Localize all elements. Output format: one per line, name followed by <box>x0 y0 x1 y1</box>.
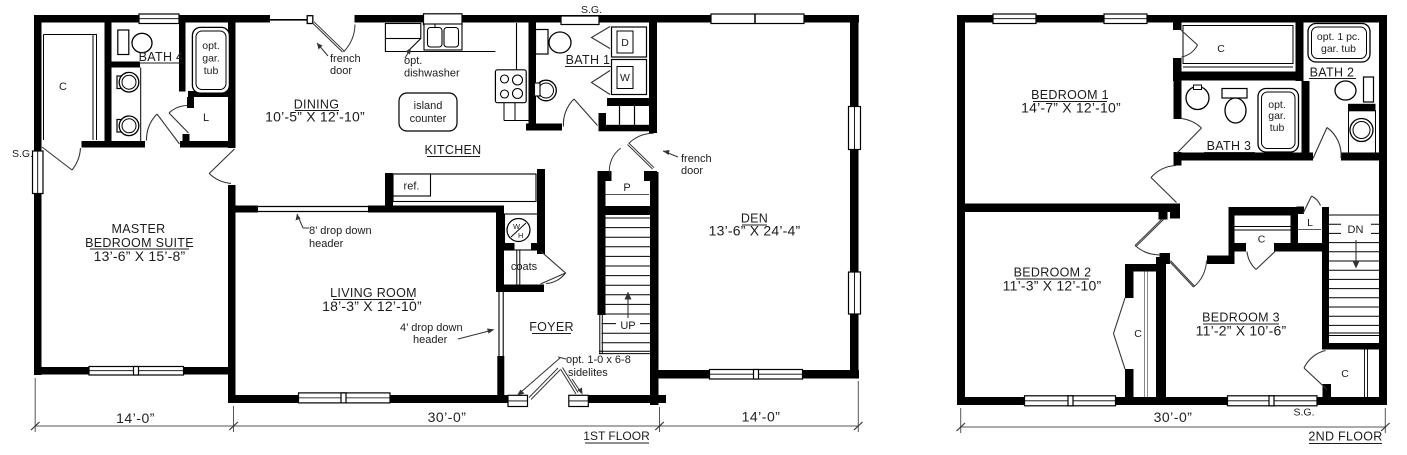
svg-text:C: C <box>59 81 67 93</box>
svg-text:opt. 1-0 x 6-8: opt. 1-0 x 6-8 <box>566 354 631 366</box>
svg-text:S.G.: S.G. <box>12 148 33 160</box>
svg-text:counter: counter <box>410 113 447 125</box>
svg-text:13’-6” X 15’-8”: 13’-6” X 15’-8” <box>94 248 186 264</box>
svg-text:W: W <box>620 72 630 84</box>
svg-text:sidelites: sidelites <box>568 367 608 379</box>
svg-text:island: island <box>414 100 443 112</box>
svg-text:DN: DN <box>1348 224 1364 236</box>
svg-text:BATH 1: BATH 1 <box>566 53 611 67</box>
svg-text:L: L <box>203 112 209 124</box>
svg-text:BATH 2: BATH 2 <box>1310 66 1355 80</box>
svg-text:H: H <box>518 231 523 240</box>
svg-text:4’ drop down: 4’ drop down <box>400 322 463 334</box>
svg-text:S.G.: S.G. <box>1293 407 1314 419</box>
svg-text:S.G.: S.G. <box>581 4 602 16</box>
svg-text:FOYER: FOYER <box>529 320 574 334</box>
svg-text:french: french <box>681 153 712 165</box>
svg-text:header: header <box>413 334 448 346</box>
svg-text:door: door <box>681 165 703 177</box>
svg-text:13’-6” X 24’-4”: 13’-6” X 24’-4” <box>709 223 801 239</box>
svg-text:opt.: opt. <box>202 40 220 52</box>
svg-text:opt.: opt. <box>404 55 422 67</box>
svg-text:gar.: gar. <box>202 53 220 65</box>
svg-text:30’-0”: 30’-0” <box>428 409 467 425</box>
svg-text:MASTER: MASTER <box>112 222 166 236</box>
svg-text:door: door <box>330 65 352 77</box>
svg-text:gar. tub: gar. tub <box>1321 43 1356 55</box>
svg-text:11’-3” X 12’-10”: 11’-3” X 12’-10” <box>1003 278 1102 294</box>
svg-text:8’ drop down: 8’ drop down <box>309 225 372 237</box>
svg-text:opt. 1 pc.: opt. 1 pc. <box>1317 31 1360 43</box>
svg-text:C: C <box>1134 328 1142 340</box>
svg-text:1ST FLOOR: 1ST FLOOR <box>583 429 650 443</box>
svg-text:14’-7” X 12’-10”: 14’-7” X 12’-10” <box>1021 100 1121 116</box>
svg-text:L: L <box>1307 217 1313 229</box>
svg-text:11’-2” X 10’-6”: 11’-2” X 10’-6” <box>1196 323 1287 339</box>
svg-text:dishwasher: dishwasher <box>404 68 460 80</box>
svg-text:14’-0”: 14’-0” <box>742 409 781 425</box>
svg-text:KITCHEN: KITCHEN <box>425 143 482 157</box>
svg-text:W: W <box>513 222 521 231</box>
svg-text:C: C <box>1217 43 1225 55</box>
svg-text:tub: tub <box>1270 122 1285 134</box>
svg-text:C: C <box>1341 368 1349 380</box>
svg-text:2ND FLOOR: 2ND FLOOR <box>1308 430 1382 444</box>
svg-text:C: C <box>1258 234 1266 246</box>
svg-text:14’-0”: 14’-0” <box>116 410 155 426</box>
svg-text:UP: UP <box>620 320 635 332</box>
svg-text:tub: tub <box>204 65 219 77</box>
svg-text:gar.: gar. <box>1268 110 1286 122</box>
svg-text:header: header <box>309 238 344 250</box>
svg-text:coats: coats <box>511 261 538 273</box>
svg-text:D: D <box>621 37 629 49</box>
svg-text:french: french <box>330 53 361 65</box>
svg-text:18’-3” X 12’-10”: 18’-3” X 12’-10” <box>322 298 422 314</box>
svg-text:30’-0”: 30’-0” <box>1154 409 1193 425</box>
svg-text:ref.: ref. <box>404 181 420 193</box>
svg-text:P: P <box>623 182 630 194</box>
svg-text:BATH 4: BATH 4 <box>139 50 184 64</box>
svg-text:BATH 3: BATH 3 <box>1207 139 1252 153</box>
svg-text:10’-5” X 12’-10”: 10’-5” X 12’-10” <box>265 109 365 125</box>
